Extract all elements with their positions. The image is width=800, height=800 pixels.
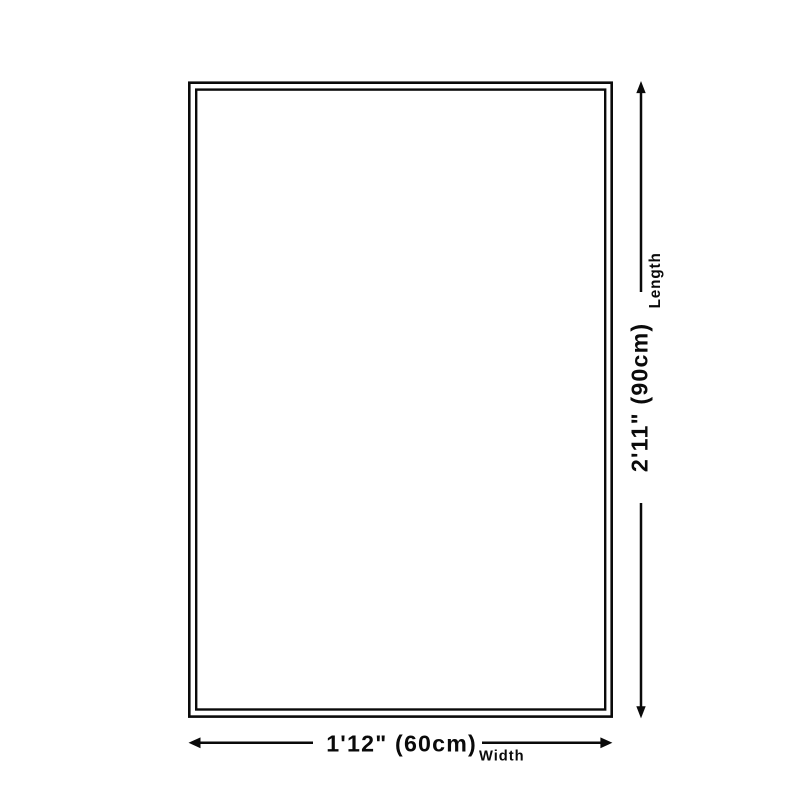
svg-text:2'11" (90cm): 2'11" (90cm): [627, 323, 653, 473]
svg-text:Length: Length: [647, 252, 664, 308]
svg-text:Width: Width: [479, 748, 525, 764]
svg-text:1'12" (60cm): 1'12" (60cm): [326, 731, 477, 757]
